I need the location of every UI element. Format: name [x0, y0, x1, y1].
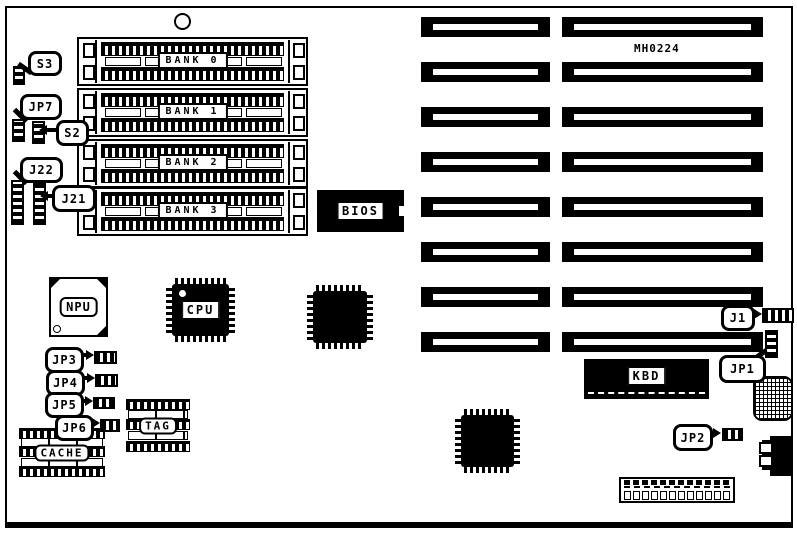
cpu-chip: CPU: [166, 278, 235, 342]
connector-pin: [759, 455, 773, 467]
jumper-j1: [762, 308, 794, 323]
npu-label: NPU: [59, 297, 98, 317]
simm-chip: [246, 108, 282, 117]
connector-pins: [624, 480, 730, 485]
connector-divider: [624, 486, 730, 488]
jumper-jp4: [95, 374, 118, 387]
expansion-slot: [421, 17, 550, 37]
callout-arrowhead: [713, 428, 721, 438]
callout-j22: J22: [20, 157, 63, 183]
connector-pin-row: [624, 491, 730, 500]
chip-pins: [316, 342, 364, 349]
corner-mark: [51, 279, 60, 288]
chip-pins: [464, 466, 511, 473]
kbd-label: KBD: [628, 367, 666, 385]
simm-chip: [105, 108, 141, 117]
simm-latch-right: [288, 142, 305, 185]
jumper-jp3: [94, 351, 117, 364]
expansion-slot: [562, 107, 763, 127]
bank-label: BANK 2: [157, 154, 227, 171]
npu-socket: NPU: [49, 277, 108, 337]
connector-pin: [759, 442, 773, 454]
corner-mark: [97, 279, 106, 288]
simm-latch-right: [288, 40, 305, 83]
simm-bank-1: BANK 1: [77, 88, 308, 137]
callout-j22-text: J22: [29, 163, 54, 177]
expansion-slot: [562, 197, 763, 217]
jumper-jp6: [100, 419, 120, 432]
bios-chip: BIOS: [317, 190, 404, 232]
callout-s2-text: S2: [64, 126, 80, 140]
cpu-label: CPU: [182, 301, 220, 319]
cache-label: CACHE: [34, 444, 89, 461]
simm-latch-right: [288, 91, 305, 134]
chip-pins: [228, 287, 235, 333]
callout-jp3-text: JP3: [52, 353, 77, 367]
jumper-jp2: [722, 428, 743, 441]
callout-jp2: JP2: [673, 424, 713, 451]
simm-pin-row: [101, 118, 284, 132]
expansion-slot: [562, 242, 763, 262]
bank-label: BANK 1: [157, 103, 227, 120]
callout-j1: J1: [721, 305, 755, 331]
chip-pins: [513, 418, 520, 464]
simm-chip: [105, 207, 141, 216]
callout-jp2-text: JP2: [681, 431, 706, 445]
ic-pin-row: [126, 441, 190, 452]
tag-label: TAG: [139, 417, 177, 434]
callout-j21: J21: [52, 185, 96, 212]
chip-body: [461, 415, 514, 467]
simm-latch-right: [288, 190, 305, 233]
callout-jp1-text: JP1: [730, 362, 755, 376]
qfp-chip: [307, 285, 373, 349]
power-connector: [619, 477, 735, 503]
simm-pin-row: [101, 67, 284, 81]
expansion-slot: [421, 62, 550, 82]
power-pin: [723, 491, 730, 500]
mounting-hole: [174, 13, 191, 30]
bank-label: BANK 0: [157, 52, 227, 69]
callout-arrowhead: [86, 350, 94, 360]
expansion-slot: [421, 152, 550, 172]
simm-chip: [246, 57, 282, 66]
expansion-slot: [562, 332, 763, 352]
expansion-slot: [562, 62, 763, 82]
callout-arrowhead: [85, 396, 93, 406]
callout-s3-text: S3: [37, 57, 53, 71]
power-pin: [651, 491, 658, 500]
callout-jp6-text: JP6: [62, 421, 87, 435]
callout-arrowhead: [87, 373, 95, 383]
simm-chip: [246, 159, 282, 168]
power-pin: [714, 491, 721, 500]
expansion-slot: [562, 287, 763, 307]
expansion-slot: [421, 287, 550, 307]
corner-mark: [97, 326, 106, 335]
keyboard-din-connector: [760, 436, 792, 478]
simm-bank-0: BANK 0: [77, 37, 308, 86]
tag-ram-group: TAG: [126, 399, 190, 452]
callout-s3: S3: [28, 51, 62, 76]
callout-arrowhead: [754, 309, 762, 319]
keyboard-controller-chip: KBD: [584, 359, 709, 399]
ic-pin-row: [19, 466, 105, 477]
power-pin: [660, 491, 667, 500]
expansion-slot: [562, 17, 763, 37]
expansion-slot: [562, 152, 763, 172]
simm-bank-3: BANK 3: [77, 187, 308, 236]
part-number-label: MH0224: [634, 42, 680, 55]
simm-pin-row: [101, 169, 284, 183]
ic-pin-row: [126, 399, 190, 410]
jumper-jp1: [765, 330, 778, 358]
power-pin: [624, 491, 631, 500]
simm-chip: [105, 159, 141, 168]
callout-jp7: JP7: [20, 94, 62, 120]
chip-pins: [366, 294, 373, 340]
simm-chip: [246, 207, 282, 216]
callout-s2: S2: [56, 120, 89, 146]
pin1-mark: [53, 325, 61, 333]
simm-latch-left: [80, 142, 97, 185]
power-pin: [633, 491, 640, 500]
callout-j21-text: J21: [62, 192, 87, 206]
callout-arrowhead: [39, 125, 47, 135]
expansion-slot: [421, 332, 550, 352]
socket-mark: [588, 392, 705, 394]
callout-jp1: JP1: [719, 355, 766, 383]
callout-jp4-text: JP4: [53, 376, 78, 390]
simm-chip: [105, 57, 141, 66]
callout-arrowhead: [40, 191, 48, 201]
chip-body: [313, 291, 367, 343]
expansion-slot: [421, 107, 550, 127]
power-pin: [687, 491, 694, 500]
callout-jp5-text: JP5: [52, 398, 77, 412]
power-pin: [678, 491, 685, 500]
jumper-j22: [11, 180, 24, 225]
jumper-j21: [33, 182, 46, 225]
expansion-slot: [421, 242, 550, 262]
simm-bank-2: BANK 2: [77, 139, 308, 188]
expansion-slot: [421, 197, 550, 217]
bank-label: BANK 3: [157, 202, 227, 219]
power-pin: [696, 491, 703, 500]
chip-pins: [175, 335, 226, 342]
power-pin: [642, 491, 649, 500]
motherboard-diagram: MH0224 BANK 0 BANK 1 BANK 2: [0, 0, 797, 533]
power-pin: [705, 491, 712, 500]
callout-jp6: JP6: [55, 415, 94, 441]
simm-latch-left: [80, 40, 97, 83]
chip-notch: [399, 206, 405, 216]
qfp-chip: [455, 409, 520, 473]
bios-label: BIOS: [337, 202, 384, 220]
jumper-jp5: [93, 397, 115, 409]
pin1-mark: [179, 290, 186, 297]
callout-jp7-text: JP7: [29, 100, 54, 114]
power-pin: [669, 491, 676, 500]
callout-j1-text: J1: [730, 311, 746, 325]
simm-pin-row: [101, 217, 284, 231]
